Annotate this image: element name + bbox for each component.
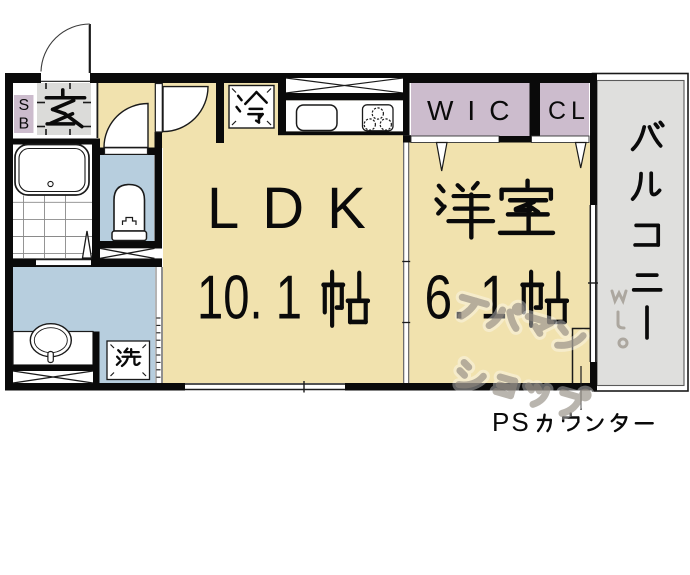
svg-text:WIC: WIC [427,95,523,126]
svg-text:S: S [18,97,29,114]
svg-text:PS: PS [492,407,531,437]
svg-text:B: B [18,116,29,133]
svg-text:CL: CL [548,97,590,125]
svg-text:LDK: LDK [207,176,389,241]
svg-text:10. 1: 10. 1 [197,264,302,333]
